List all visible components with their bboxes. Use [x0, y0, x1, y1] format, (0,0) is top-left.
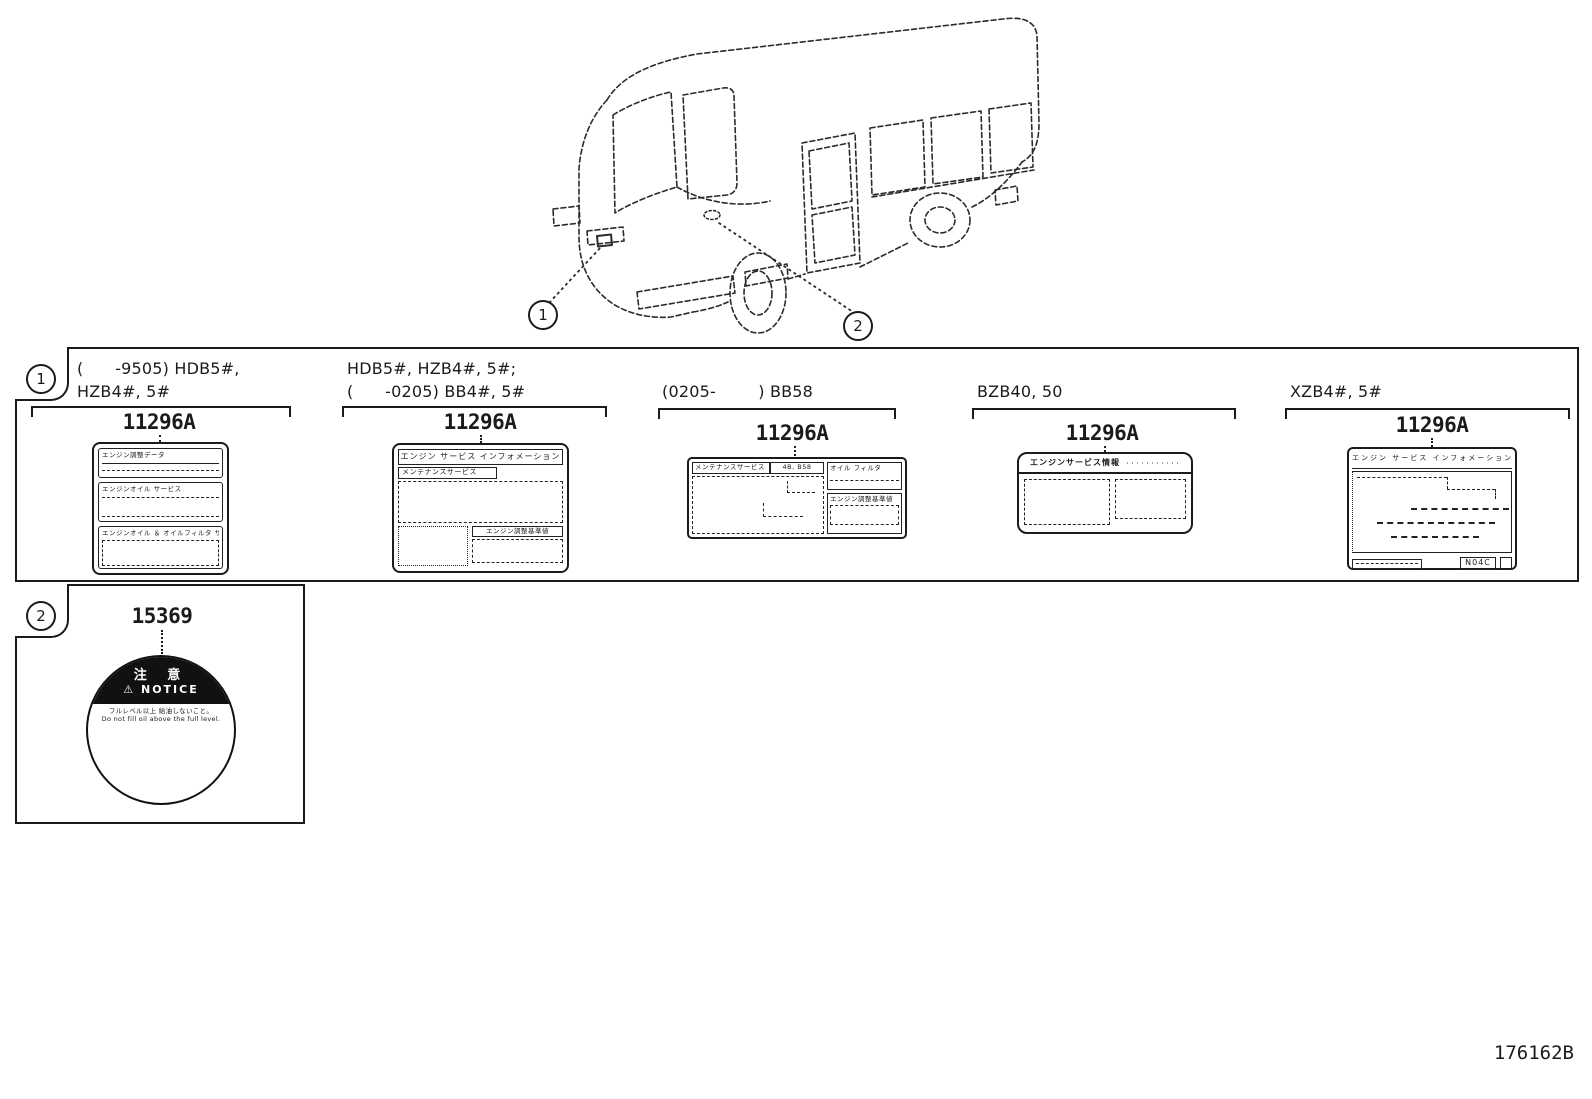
bus-rear-wheel	[910, 193, 970, 247]
callout-1-number: 1	[538, 306, 548, 324]
label-b-header: エンジン サービス インフォメーション	[398, 449, 563, 465]
part-leader	[1431, 438, 1433, 447]
label-b-subheader: メンテナンスサービス	[398, 467, 497, 479]
variant-caption: HZB4#, 5#	[77, 382, 170, 401]
service-label-e: エンジン サービス インフォメーション N04C	[1347, 447, 1517, 570]
caution-plate-header: 注 意 ⚠ NOTICE	[88, 657, 234, 704]
caution-jp-text: 注 意	[88, 664, 234, 683]
part-leader	[794, 446, 796, 456]
bus-front-line	[579, 100, 693, 317]
caution-line-jp: フルレベル以上 給油しないこと。	[88, 707, 234, 715]
part-number: 11296A	[104, 410, 214, 434]
section-1-tab: 1	[15, 347, 69, 401]
callout-2-badge: 2	[843, 311, 873, 341]
label-c-right-bottom-title: エンジン調整基準値	[830, 495, 899, 503]
caution-line-en: Do not fill oil above the full level.	[88, 715, 234, 723]
callout-2-number: 2	[853, 317, 863, 335]
label-c-bar-left: メンテナンスサービス	[692, 462, 770, 474]
variant-caption: ( -9505) HDB5#,	[77, 359, 240, 378]
callout-1-badge: 1	[528, 300, 558, 330]
label-a-sec3-title: エンジンオイル ＆ オイルフィルタ サービス	[102, 529, 219, 537]
bus-rear-hub	[925, 207, 955, 233]
bus-side-window-3	[989, 103, 1033, 173]
bus-door-window	[809, 143, 852, 209]
label-a-sec1-title: エンジン調整データ	[102, 451, 219, 459]
part-number: 11296A	[425, 410, 535, 434]
part-number: 11296A	[1047, 421, 1157, 445]
label-e-engine-code: N04C	[1460, 557, 1496, 570]
bus-quarter-window	[683, 88, 737, 199]
bus-side-window-1	[870, 120, 925, 195]
section-2-panel: 2 15369 注 意 ⚠ NOTICE フルレベル以上 給油しないこと。 Do…	[15, 584, 305, 824]
variant-caption: ( -0205) BB4#, 5#	[347, 382, 525, 401]
section-2-tab-number: 2	[36, 607, 46, 625]
part-number: 15369	[107, 604, 217, 628]
part-number: 11296A	[1377, 413, 1487, 437]
bus-door	[802, 133, 860, 273]
page-canvas: 1 2 1 ( -9505) HDB5#, HZB4#, 5# 11296A エ…	[0, 0, 1592, 1099]
label-c-bar-right: 4B, B58	[770, 462, 824, 474]
variant-caption: XZB4#, 5#	[1290, 382, 1382, 401]
bus-side-window-2	[931, 111, 983, 184]
part-leader	[159, 435, 161, 442]
bus-fuel-lid	[995, 186, 1018, 205]
label-c-right-top-title: オイル フィルタ	[830, 464, 899, 472]
service-label-a: エンジン調整データ エンジンオイル サービス エンジンオイル ＆ オイルフィルタ…	[92, 442, 229, 575]
figure-code: 176162B	[1464, 1042, 1574, 1064]
label-e-header: エンジン サービス インフォメーション	[1352, 452, 1512, 469]
variant-bracket	[658, 408, 896, 419]
bus-beltline	[872, 170, 1034, 197]
bus-headlight	[553, 206, 580, 226]
bus-front-wheel	[730, 253, 786, 333]
warning-triangle-icon: ⚠	[123, 683, 135, 696]
section-1-tab-number: 1	[36, 370, 46, 388]
caution-plate-label: 注 意 ⚠ NOTICE フルレベル以上 給油しないこと。 Do not fil…	[86, 655, 236, 805]
label-d-header-note: ・・・・・・・・・・・	[1125, 460, 1180, 467]
bus-windshield	[613, 92, 677, 213]
service-label-b: エンジン サービス インフォメーション メンテナンスサービス エンジン調整基準値	[392, 443, 569, 573]
bus-label2-location	[704, 211, 720, 220]
service-label-d: エンジンサービス情報 ・・・・・・・・・・・	[1017, 452, 1193, 534]
section-1-panel: 1 ( -9505) HDB5#, HZB4#, 5# 11296A エンジン調…	[15, 347, 1579, 582]
caution-en-text: NOTICE	[141, 683, 199, 696]
bus-label1-location	[597, 235, 612, 247]
label-b-corner-title: エンジン調整基準値	[472, 526, 563, 537]
part-number: 11296A	[737, 421, 847, 445]
bus-front-hub	[744, 271, 772, 315]
bus-roof-line	[607, 18, 1039, 162]
variant-caption: HDB5#, HZB4#, 5#;	[347, 359, 516, 378]
part-leader	[480, 435, 482, 443]
bus-illustration	[525, 5, 1065, 345]
bus-bumper-slot	[637, 276, 735, 309]
section-2-tab: 2	[15, 584, 69, 638]
label-a-sec2-title: エンジンオイル サービス	[102, 485, 219, 493]
variant-bracket	[972, 408, 1236, 419]
variant-caption: (0205- ) BB58	[662, 382, 813, 401]
label-d-header: エンジンサービス情報	[1030, 458, 1120, 468]
bus-door-panel	[812, 207, 855, 263]
part-leader	[161, 630, 163, 654]
service-label-c: メンテナンスサービス 4B, B58 オイル フィルタ エンジン調整基準値	[687, 457, 907, 539]
variant-caption: BZB40, 50	[977, 382, 1063, 401]
bus-bumper-slot2	[745, 264, 788, 286]
section-2-tab-badge: 2	[26, 601, 56, 631]
section-1-tab-badge: 1	[26, 364, 56, 394]
